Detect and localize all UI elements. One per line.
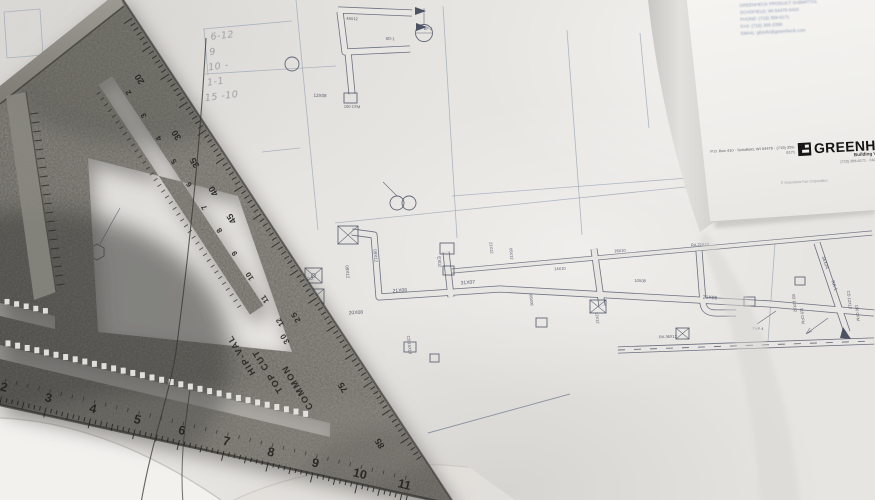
svg-text:8: 8 bbox=[214, 226, 224, 234]
svg-text:9: 9 bbox=[230, 249, 240, 257]
svg-text:45: 45 bbox=[225, 212, 239, 226]
photo-scene: 21X0831X0720X0821X0609X1209X1212X08EX02C… bbox=[0, 0, 875, 500]
svg-text:7: 7 bbox=[199, 203, 209, 211]
speed-square: 2030354045758523456789101112HIP-VALTOP C… bbox=[0, 0, 875, 500]
